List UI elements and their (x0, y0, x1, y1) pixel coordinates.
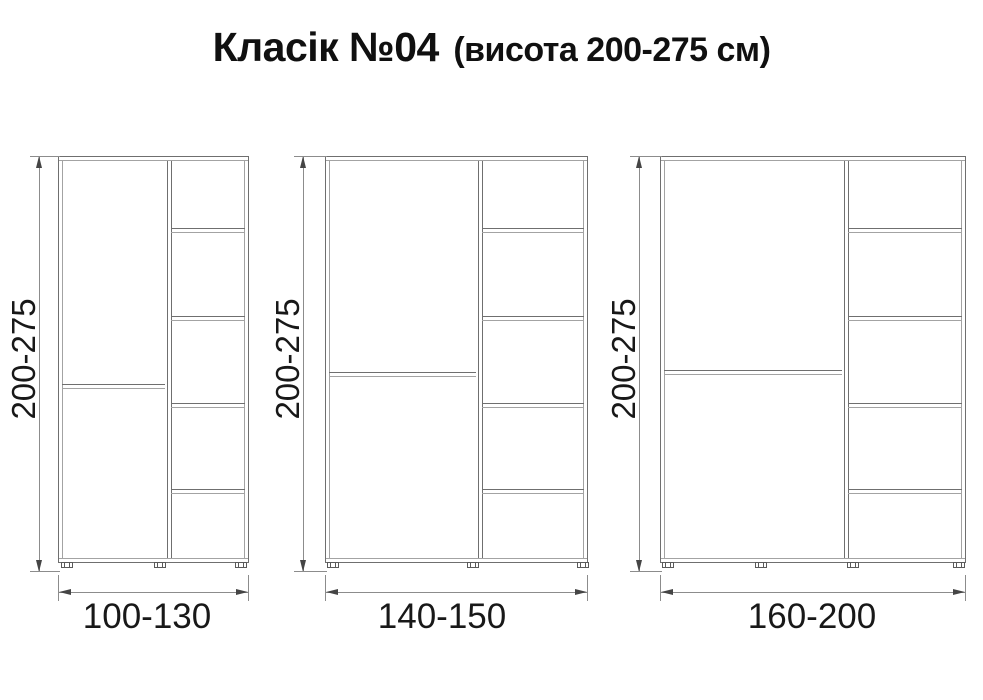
width-ext-line-right (587, 575, 588, 601)
dim-arrow-left-icon (661, 589, 673, 595)
shelf-line (482, 403, 584, 408)
cabinet-foot (847, 562, 859, 568)
dim-tick-top (630, 156, 662, 157)
width-ext-line-right (965, 575, 966, 601)
cabinet-2-body (325, 156, 588, 563)
width-dim-label: 140-150 (322, 597, 562, 637)
width-dim-label: 160-200 (692, 597, 932, 637)
cabinet-foot (154, 562, 166, 568)
dim-arrow-left-icon (326, 589, 338, 595)
dim-arrow-up-icon (300, 156, 306, 168)
shelf-line (848, 228, 962, 233)
cabinet-foot (327, 562, 339, 568)
dim-arrow-up-icon (36, 156, 42, 168)
top-board-line (326, 160, 587, 161)
shelf-line (171, 403, 245, 408)
door-split-line (329, 372, 476, 377)
dim-arrow-right-icon (953, 589, 965, 595)
dim-arrow-right-icon (575, 589, 587, 595)
bottom-board-line (59, 558, 248, 559)
width-dim-label: 100-130 (27, 597, 267, 637)
cabinet-1-body (58, 156, 249, 563)
shelf-line (171, 228, 245, 233)
cabinet-foot (662, 562, 674, 568)
shelf-line (848, 403, 962, 408)
cabinet-foot (467, 562, 479, 568)
width-dim-line (661, 592, 965, 593)
side-panel-line-left (329, 161, 330, 558)
dim-arrow-left-icon (59, 589, 71, 595)
side-panel-line-right (583, 161, 584, 558)
center-divider-line (167, 161, 172, 558)
shelf-line (848, 316, 962, 321)
top-board-line (661, 160, 965, 161)
dim-tick-bottom (294, 571, 327, 572)
side-panel-line-right (244, 161, 245, 558)
cabinet-foot (953, 562, 965, 568)
dim-tick-top (30, 156, 60, 157)
height-dim-label: 200-275 (605, 298, 643, 419)
height-dim-label: 200-275 (269, 298, 307, 419)
furniture-diagram: Класік №04 (висота 200-275 см) 200-27510… (0, 0, 983, 700)
width-dim-line (326, 592, 587, 593)
page-title: Класік №04 (висота 200-275 см) (0, 22, 983, 82)
center-divider-line (844, 161, 849, 558)
top-board-line (59, 160, 248, 161)
width-ext-line-left (660, 575, 661, 601)
cabinet-foot (61, 562, 73, 568)
side-panel-line-left (62, 161, 63, 558)
shelf-line (171, 489, 245, 494)
bottom-board-line (661, 558, 965, 559)
dim-arrow-right-icon (236, 589, 248, 595)
page-title-sub: (висота 200-275 см) (453, 31, 770, 69)
cabinet-foot (577, 562, 589, 568)
dim-tick-bottom (630, 571, 662, 572)
door-split-line (664, 370, 842, 375)
page-title-main: Класік №04 (213, 24, 439, 70)
center-divider-line (478, 161, 483, 558)
shelf-line (848, 489, 962, 494)
dim-tick-top (294, 156, 327, 157)
width-dim-line (59, 592, 248, 593)
door-split-line (62, 384, 165, 389)
cabinet-foot (235, 562, 247, 568)
bottom-board-line (326, 558, 587, 559)
dim-tick-bottom (30, 571, 60, 572)
height-dim-label: 200-275 (5, 298, 43, 419)
cabinet-3-body (660, 156, 966, 563)
side-panel-line-left (664, 161, 665, 558)
dim-arrow-up-icon (636, 156, 642, 168)
shelf-line (482, 489, 584, 494)
shelf-line (171, 316, 245, 321)
cabinet-foot (755, 562, 767, 568)
shelf-line (482, 316, 584, 321)
side-panel-line-right (961, 161, 962, 558)
shelf-line (482, 228, 584, 233)
